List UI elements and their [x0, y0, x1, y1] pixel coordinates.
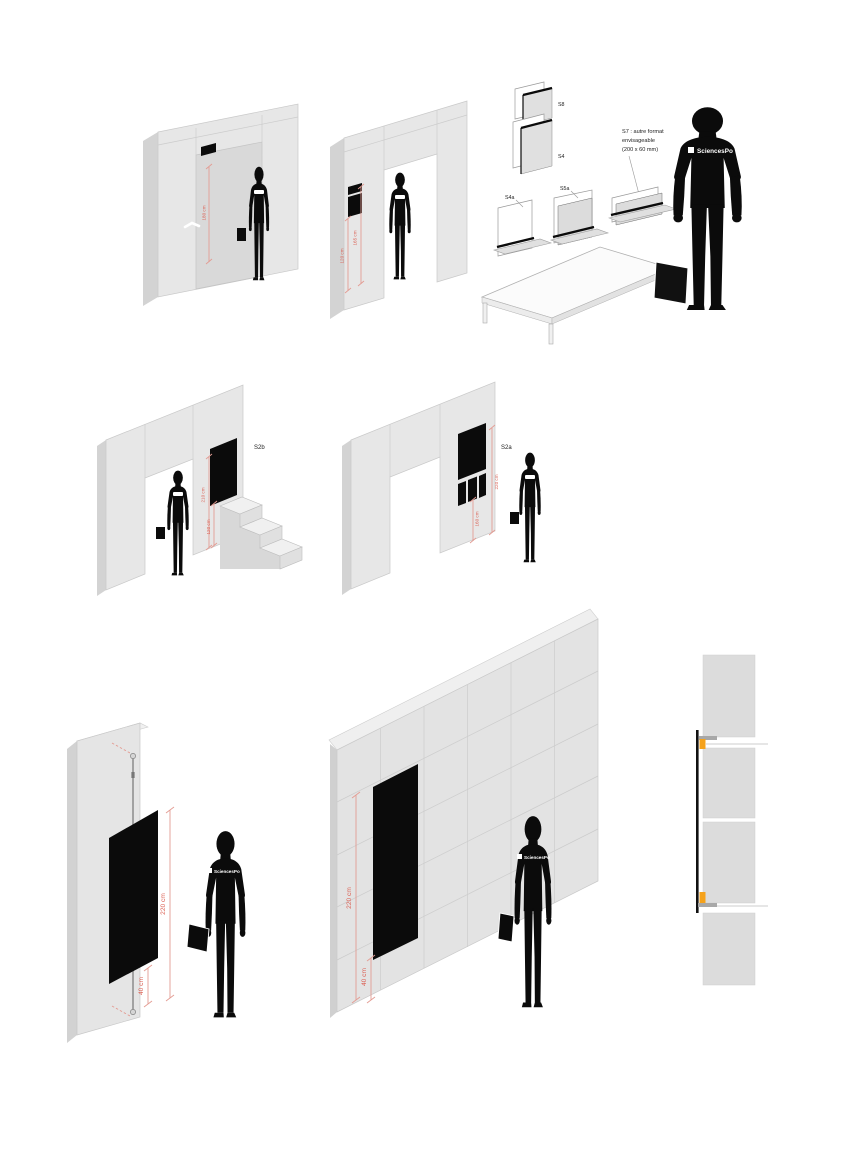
- label-s2b: S2b: [254, 445, 265, 451]
- person-silhouette: [519, 453, 540, 563]
- bottom-bracket-flange: [698, 903, 717, 907]
- label-s4: S4: [558, 154, 565, 160]
- banner-panel: [109, 810, 158, 984]
- dim-label-180: 180 cm: [202, 205, 207, 220]
- svg-text:envisageable: envisageable: [622, 138, 655, 144]
- sciencespo-logo-mark: [207, 868, 212, 873]
- pole-top-ball: [130, 753, 135, 758]
- person-silhouette-large: [206, 831, 246, 1017]
- shirt-logo: [395, 195, 405, 199]
- fig-mounting-section: [696, 655, 768, 985]
- fig-portal-s2a: S2a 220 cm 160 cm: [342, 382, 541, 595]
- shirt-logo-text: SciencesPo: [524, 855, 550, 860]
- holder-s5a: S5a: [551, 186, 608, 245]
- folder: [498, 913, 514, 942]
- svg-text:220 cm: 220 cm: [346, 887, 353, 909]
- svg-text:210 cm: 210 cm: [201, 487, 206, 502]
- svg-text:120 cm: 120 cm: [206, 519, 211, 534]
- portal-front-face: [344, 101, 467, 310]
- fig-pole-panel: 220 cm 40 cm SciencesPo: [67, 723, 245, 1043]
- shirt-logo: [254, 190, 264, 194]
- fig-door-plaque: 180 cm: [143, 104, 298, 306]
- dim-label-165: 165 cm: [353, 230, 358, 245]
- label-s8: S8: [558, 102, 565, 108]
- svg-text:160 cm: 160 cm: [475, 511, 480, 526]
- wall-side-face: [330, 138, 344, 319]
- pole-collar: [131, 772, 134, 778]
- shirt-logo: [525, 475, 535, 479]
- wall-side-face: [143, 132, 158, 306]
- sign-profile-bar: [696, 730, 699, 913]
- shirt-logo-text: SciencesPo: [214, 869, 240, 874]
- section-panel: [703, 822, 755, 903]
- sciencespo-logo-mark: [517, 854, 522, 859]
- svg-text:40 cm: 40 cm: [138, 977, 145, 995]
- fig-portal-s2b: S2b 210 cm 120 cm: [97, 385, 302, 596]
- pole-bottom-ball: [130, 1009, 135, 1014]
- sciencespo-logo-mark: [688, 147, 694, 153]
- section-panel: [703, 913, 755, 985]
- slab-side-face: [67, 741, 77, 1043]
- briefcase: [510, 512, 519, 524]
- bottom-bracket-clip: [700, 892, 706, 903]
- person-silhouette: [167, 471, 188, 576]
- label-s5a: S5a: [560, 186, 569, 192]
- fig-portal-small-sign: 120 cm 165 cm: [330, 101, 467, 319]
- wall-side-face: [97, 440, 106, 596]
- table-leg: [549, 324, 553, 344]
- top-bracket-clip: [700, 739, 706, 749]
- sign-panel-s2b: [210, 438, 237, 506]
- portal-sign-panel: [348, 193, 362, 217]
- holder-s4a: S4a: [494, 195, 551, 256]
- shirt-logo-text: SciencesPo: [697, 148, 733, 155]
- section-panel: [703, 655, 755, 737]
- table: [482, 247, 670, 344]
- sign-panel-s2a-cell: [458, 481, 466, 506]
- label-s4a: S4a: [505, 195, 514, 201]
- holder-s7: [609, 187, 676, 225]
- briefcase: [237, 228, 246, 241]
- briefcase: [156, 527, 165, 539]
- svg-text:40 cm: 40 cm: [361, 968, 368, 986]
- svg-text:S7 : autre format: S7 : autre format: [622, 129, 664, 135]
- dimension-pole-height: 220 cm: [160, 807, 174, 1001]
- svg-text:(200 x 60 mm): (200 x 60 mm): [622, 147, 658, 153]
- wall-side-face: [330, 744, 337, 1018]
- diagram-canvas: 180 cm 120 cm 165 cm: [0, 0, 850, 1162]
- shirt-logo: [173, 492, 183, 496]
- wall-sign-panel: [373, 764, 418, 960]
- label-s2a: S2a: [501, 445, 512, 451]
- fig-table-displays: S8 S4 S7 : autre format envisageable (20…: [482, 82, 742, 344]
- table-leg: [483, 303, 487, 323]
- svg-text:220 cm: 220 cm: [494, 474, 499, 489]
- person-silhouette: [389, 173, 410, 280]
- dim-label-120: 120 cm: [340, 248, 345, 263]
- sign-panel-s2a-cell: [479, 473, 486, 498]
- folder: [187, 924, 209, 952]
- sheet-s4-front: [521, 120, 552, 174]
- section-panel: [703, 748, 755, 818]
- fig-tiled-wall: 220 cm 40 cm SciencesPo: [329, 609, 598, 1018]
- stairs: [220, 497, 302, 569]
- svg-text:220 cm: 220 cm: [160, 893, 167, 915]
- folder: [654, 262, 688, 304]
- sign-panel-s2a-cell: [468, 477, 477, 503]
- wall-side-face: [342, 440, 351, 595]
- signage-spec-sheet: 180 cm 120 cm 165 cm: [0, 0, 850, 1162]
